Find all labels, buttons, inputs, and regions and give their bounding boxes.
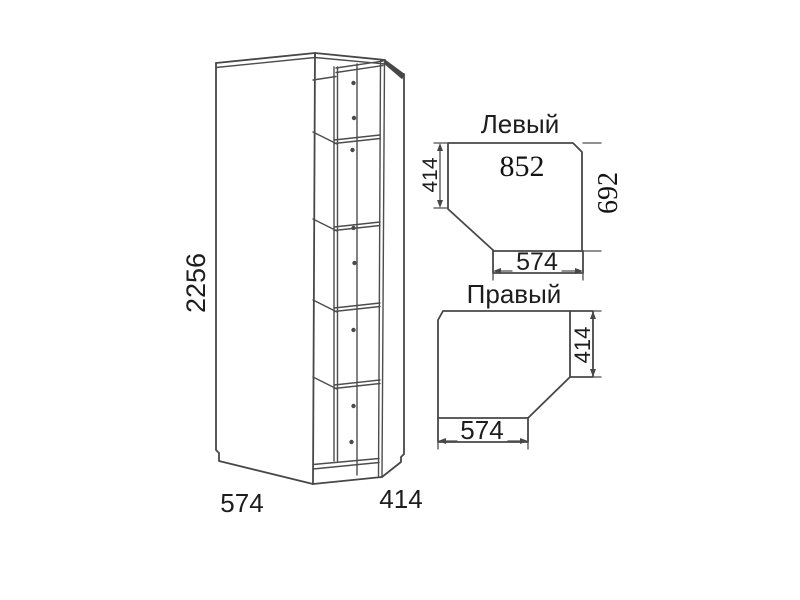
drawing-canvas: 2256 574 414 Левый 414 852 692 574 <box>0 0 800 600</box>
cabinet-screw-dots <box>349 81 356 444</box>
cabinet-top-ridge-inner <box>216 58 385 68</box>
cabinet-right-inner-edge <box>382 61 385 476</box>
cabinet-left-face-outline <box>216 63 313 484</box>
dim-cabinet-side-depth: 414 <box>379 484 422 514</box>
cabinet-perspective-view: 2256 574 414 <box>181 53 423 518</box>
furniture-technical-drawing: 2256 574 414 Левый 414 852 692 574 <box>0 0 800 600</box>
cabinet-right-panel-outline <box>382 74 404 477</box>
left-plan-dim-574: 574 <box>516 248 558 276</box>
right-plan-title: Правый <box>467 279 562 309</box>
cabinet-opening-bottom-edge <box>313 477 382 484</box>
cabinet-shelves <box>313 132 380 389</box>
right-plan-outline <box>438 311 570 418</box>
left-plan-dim-692: 692 <box>593 172 624 214</box>
left-version-plan: Левый 414 852 692 574 <box>419 109 624 280</box>
left-plan-dim-414: 414 <box>419 157 442 192</box>
right-plan-dim-414: 414 <box>570 327 595 364</box>
left-plan-dim-852: 852 <box>500 150 545 183</box>
cabinet-right-inner-edge-2 <box>379 61 381 476</box>
cabinet-front-edge <box>313 53 315 484</box>
cabinet-top-corner-wedge <box>385 60 404 79</box>
left-plan-title: Левый <box>481 109 560 139</box>
right-plan-dim-574: 574 <box>460 415 503 445</box>
cabinet-top-frame-edge <box>313 77 336 81</box>
dim-cabinet-height: 2256 <box>181 253 211 313</box>
right-version-plan: Правый 414 574 <box>438 279 601 449</box>
dim-cabinet-front-width: 574 <box>220 488 263 518</box>
